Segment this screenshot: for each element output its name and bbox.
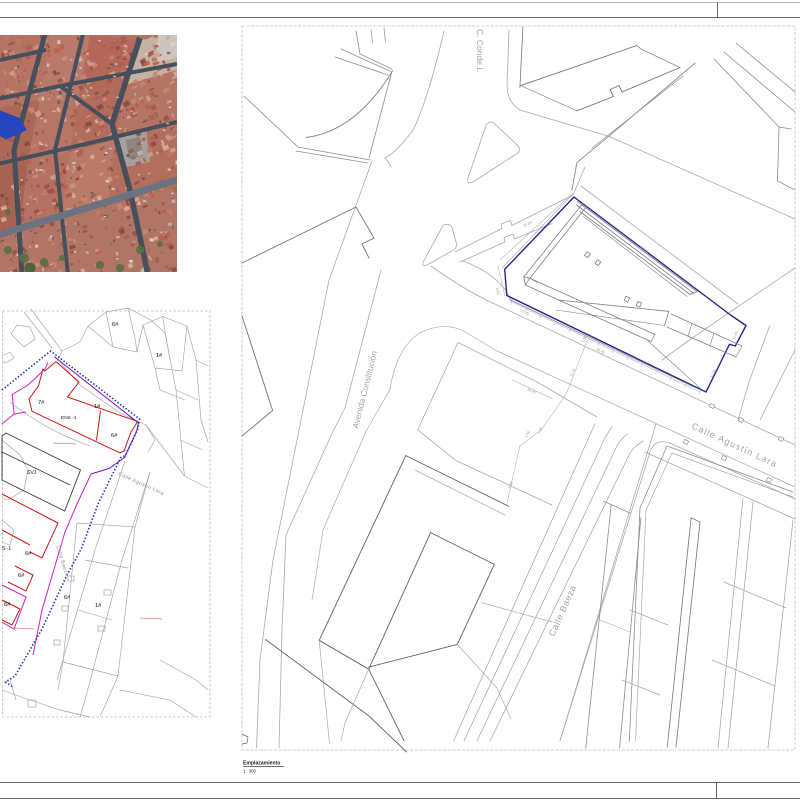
svg-text:1 : 300: 1 : 300	[243, 769, 256, 774]
svg-text:ENS -1: ENS -1	[61, 415, 77, 421]
svg-text:6#: 6#	[18, 573, 25, 579]
svg-text:SVJ: SVJ	[27, 470, 37, 476]
svg-text:1#: 1#	[94, 404, 101, 410]
svg-text:6#: 6#	[112, 322, 119, 328]
svg-text:1#: 1#	[95, 603, 102, 609]
svg-text:6#: 6#	[64, 595, 71, 601]
svg-text:7#: 7#	[38, 400, 45, 406]
svg-text:1#: 1#	[156, 353, 163, 359]
svg-text:6#: 6#	[4, 602, 11, 608]
svg-text:S -1: S -1	[2, 546, 11, 552]
svg-text:C. Conde L: C. Conde L	[475, 29, 485, 72]
svg-text:6#: 6#	[111, 433, 118, 439]
svg-text:6#: 6#	[25, 551, 32, 557]
svg-text:Emplazamiento: Emplazamiento	[243, 761, 280, 767]
